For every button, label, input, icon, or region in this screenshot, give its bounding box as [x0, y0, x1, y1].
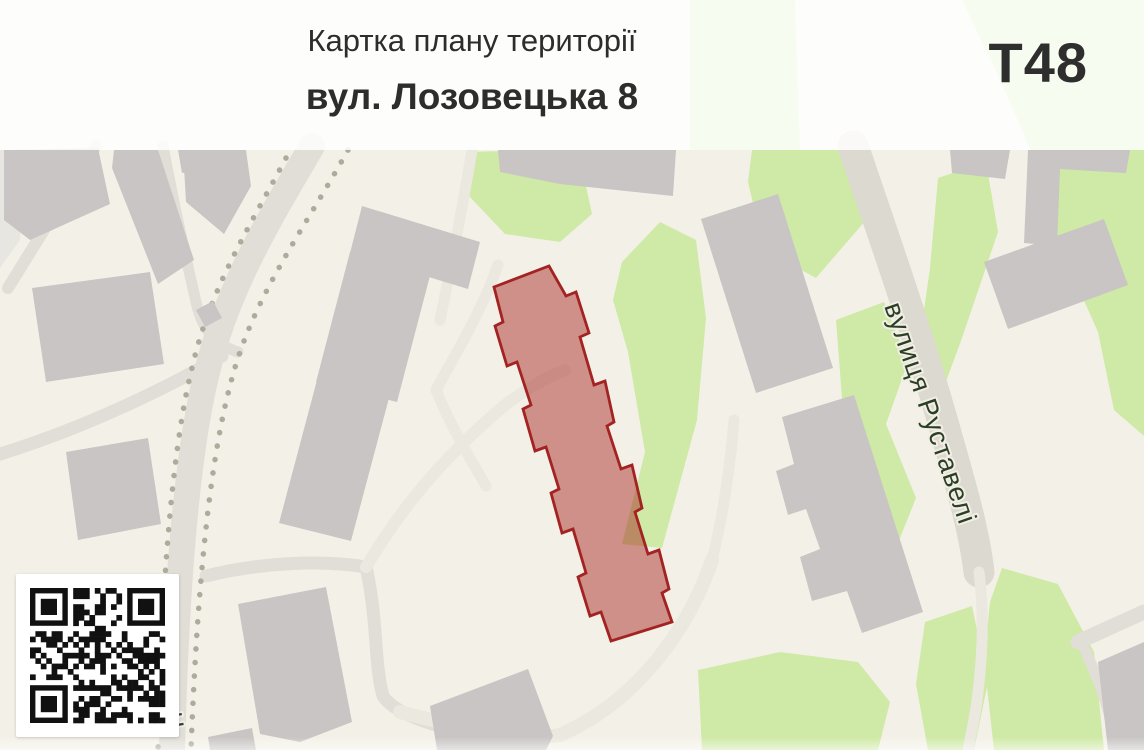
- qr-module: [116, 696, 122, 702]
- qr-module: [127, 680, 133, 686]
- qr-module: [149, 696, 155, 702]
- plan-card-header: Картка плану території вул. Лозовецька 8…: [0, 0, 1144, 150]
- qr-module: [95, 604, 101, 610]
- qr-module: [127, 658, 133, 664]
- qr-module: [138, 685, 144, 691]
- qr-module: [57, 664, 63, 670]
- qr-module: [41, 664, 47, 670]
- qr-module: [52, 631, 58, 637]
- qr-module: [95, 718, 101, 724]
- qr-module: [111, 712, 117, 718]
- qr-module: [160, 637, 166, 643]
- qr-module: [95, 701, 101, 707]
- qr-module: [95, 642, 101, 648]
- qr-module: [35, 647, 41, 653]
- qr-module: [35, 658, 41, 664]
- qr-module: [84, 620, 90, 626]
- qr-module: [79, 707, 85, 713]
- qr-module: [133, 664, 139, 670]
- qr-module: [122, 658, 128, 664]
- qr-module: [160, 669, 166, 675]
- qr-module: [154, 653, 160, 659]
- qr-module: [100, 631, 106, 637]
- qr-module: [79, 647, 85, 653]
- qr-module: [122, 707, 128, 713]
- qr-module: [154, 696, 160, 702]
- qr-module: [84, 653, 90, 659]
- qr-module: [84, 685, 90, 691]
- qr-module: [116, 642, 122, 648]
- qr-module: [143, 691, 149, 697]
- qr-module: [46, 637, 52, 643]
- qr-module: [160, 701, 166, 707]
- qr-module: [73, 674, 79, 680]
- qr-module: [62, 642, 68, 648]
- qr-module: [73, 653, 79, 659]
- qr-module: [95, 658, 101, 664]
- qr-module: [100, 599, 106, 605]
- qr-module: [52, 664, 58, 670]
- qr-module: [149, 712, 155, 718]
- qr-module: [84, 664, 90, 670]
- qr-module: [127, 685, 133, 691]
- qr-finder: [41, 599, 57, 615]
- qr-module: [46, 658, 52, 664]
- qr-module: [149, 718, 155, 724]
- qr-module: [89, 664, 95, 670]
- qr-module: [133, 685, 139, 691]
- qr-module: [154, 658, 160, 664]
- qr-module: [100, 669, 106, 675]
- qr-module: [73, 593, 79, 599]
- qr-module: [79, 593, 85, 599]
- qr-module: [111, 588, 117, 594]
- plan-code-badge: Т48: [989, 30, 1089, 95]
- qr-module: [149, 653, 155, 659]
- qr-module: [154, 631, 160, 637]
- qr-module: [95, 647, 101, 653]
- qr-module: [57, 647, 63, 653]
- qr-module: [111, 680, 117, 686]
- qr-module: [100, 637, 106, 643]
- qr-module: [95, 685, 101, 691]
- qr-module: [89, 685, 95, 691]
- qr-module: [106, 653, 112, 659]
- building-polygon: [66, 438, 161, 540]
- qr-module: [127, 642, 133, 648]
- qr-module: [68, 669, 74, 675]
- qr-module: [84, 637, 90, 643]
- qr-module: [73, 631, 79, 637]
- qr-module: [106, 642, 112, 648]
- qr-module: [89, 696, 95, 702]
- qr-module: [89, 631, 95, 637]
- qr-module: [95, 696, 101, 702]
- qr-module: [79, 637, 85, 643]
- qr-code-image: [16, 574, 179, 737]
- qr-module: [149, 669, 155, 675]
- qr-module: [73, 685, 79, 691]
- qr-module: [46, 642, 52, 648]
- qr-module: [154, 691, 160, 697]
- qr-module: [133, 680, 139, 686]
- qr-module: [160, 718, 166, 724]
- qr-module: [133, 653, 139, 659]
- qr-module: [116, 685, 122, 691]
- qr-module: [41, 653, 47, 659]
- qr-module: [100, 685, 106, 691]
- qr-module: [122, 647, 128, 653]
- qr-module: [52, 669, 58, 675]
- qr-module: [73, 664, 79, 670]
- qr-module: [73, 610, 79, 616]
- qr-finder: [41, 696, 57, 712]
- qr-module: [154, 647, 160, 653]
- qr-module: [100, 653, 106, 659]
- qr-module: [79, 696, 85, 702]
- qr-module: [138, 658, 144, 664]
- qr-module: [138, 696, 144, 702]
- qr-module: [122, 631, 128, 637]
- qr-module: [138, 718, 144, 724]
- green-area: [698, 652, 890, 750]
- title-block: Картка плану території вул. Лозовецька 8: [132, 22, 812, 119]
- qr-module: [138, 669, 144, 675]
- qr-module: [111, 647, 117, 653]
- qr-module: [154, 685, 160, 691]
- qr-module: [41, 637, 47, 643]
- qr-module: [89, 637, 95, 643]
- qr-module: [106, 685, 112, 691]
- qr-module: [100, 593, 106, 599]
- qr-module: [84, 588, 90, 594]
- qr-module: [30, 647, 36, 653]
- qr-module: [116, 593, 122, 599]
- qr-module: [122, 637, 128, 643]
- qr-module: [154, 701, 160, 707]
- territory-plan-card: вулиця Руставелі Ч Картка плану територі…: [0, 0, 1144, 750]
- qr-module: [79, 604, 85, 610]
- qr-module: [111, 718, 117, 724]
- qr-module: [73, 615, 79, 621]
- qr-module: [100, 664, 106, 670]
- qr-module: [46, 674, 52, 680]
- qr-module: [116, 615, 122, 621]
- qr-module: [116, 680, 122, 686]
- qr-module: [106, 701, 112, 707]
- qr-module: [149, 701, 155, 707]
- qr-module: [100, 707, 106, 713]
- qr-module: [127, 718, 133, 724]
- qr-module: [149, 631, 155, 637]
- qr-module: [95, 712, 101, 718]
- qr-module: [79, 653, 85, 659]
- qr-module: [30, 653, 36, 659]
- qr-module: [73, 642, 79, 648]
- qr-module: [160, 680, 166, 686]
- qr-module: [95, 631, 101, 637]
- qr-module: [84, 712, 90, 718]
- qr-module: [143, 642, 149, 648]
- qr-module: [84, 701, 90, 707]
- qr-module: [116, 653, 122, 659]
- qr-module: [149, 658, 155, 664]
- page-title: Картка плану території: [132, 22, 812, 61]
- qr-module: [89, 680, 95, 686]
- qr-module: [100, 718, 106, 724]
- qr-module: [100, 626, 106, 632]
- building-polygon: [32, 272, 164, 382]
- qr-module: [138, 674, 144, 680]
- qr-module: [52, 642, 58, 648]
- qr-module: [73, 620, 79, 626]
- qr-module: [127, 664, 133, 670]
- qr-module: [30, 637, 36, 643]
- qr-module: [143, 653, 149, 659]
- qr-module: [57, 674, 63, 680]
- qr-module: [143, 696, 149, 702]
- qr-module: [116, 599, 122, 605]
- qr-module: [73, 707, 79, 713]
- qr-module: [122, 685, 128, 691]
- qr-module: [100, 712, 106, 718]
- qr-module: [154, 712, 160, 718]
- qr-module: [100, 691, 106, 697]
- qr-module: [127, 691, 133, 697]
- qr-module: [68, 653, 74, 659]
- qr-module: [122, 674, 128, 680]
- qr-module: [30, 674, 36, 680]
- qr-module: [68, 637, 74, 643]
- qr-module: [111, 696, 117, 702]
- qr-module: [73, 701, 79, 707]
- qr-module: [84, 610, 90, 616]
- qr-module: [95, 626, 101, 632]
- qr-module: [106, 691, 112, 697]
- qr-module: [143, 674, 149, 680]
- qr-module: [79, 685, 85, 691]
- qr-module: [160, 674, 166, 680]
- qr-module: [95, 637, 101, 643]
- qr-module: [84, 707, 90, 713]
- qr-module: [111, 604, 117, 610]
- qr-module: [89, 701, 95, 707]
- qr-module: [143, 664, 149, 670]
- qr-module: [89, 620, 95, 626]
- qr-module: [160, 696, 166, 702]
- qr-module: [149, 685, 155, 691]
- qr-module: [79, 718, 85, 724]
- qr-module: [57, 631, 63, 637]
- qr-module: [57, 637, 63, 643]
- qr-module: [52, 637, 58, 643]
- qr-module: [62, 653, 68, 659]
- qr-module: [122, 712, 128, 718]
- qr-code: [16, 574, 179, 737]
- qr-module: [62, 664, 68, 670]
- qr-module: [116, 712, 122, 718]
- qr-module: [127, 647, 133, 653]
- qr-module: [154, 664, 160, 670]
- qr-module: [154, 718, 160, 724]
- qr-module: [106, 718, 112, 724]
- qr-module: [111, 620, 117, 626]
- qr-module: [73, 604, 79, 610]
- qr-module: [84, 593, 90, 599]
- qr-module: [100, 658, 106, 664]
- qr-module: [100, 604, 106, 610]
- qr-module: [127, 696, 133, 702]
- qr-module: [35, 631, 41, 637]
- qr-module: [106, 588, 112, 594]
- qr-module: [138, 653, 144, 659]
- qr-module: [79, 588, 85, 594]
- qr-module: [143, 658, 149, 664]
- qr-module: [73, 588, 79, 594]
- qr-module: [160, 653, 166, 659]
- qr-module: [143, 637, 149, 643]
- qr-module: [138, 647, 144, 653]
- qr-module: [79, 658, 85, 664]
- qr-module: [79, 615, 85, 621]
- qr-module: [41, 631, 47, 637]
- qr-module: [149, 680, 155, 686]
- qr-module: [52, 674, 58, 680]
- qr-module: [111, 664, 117, 670]
- qr-module: [89, 615, 95, 621]
- qr-module: [62, 658, 68, 664]
- qr-module: [111, 674, 117, 680]
- qr-module: [79, 712, 85, 718]
- qr-module: [106, 631, 112, 637]
- qr-module: [95, 588, 101, 594]
- qr-module: [133, 647, 139, 653]
- qr-module: [79, 610, 85, 616]
- qr-module: [160, 691, 166, 697]
- qr-module: [95, 610, 101, 616]
- qr-module: [79, 680, 85, 686]
- qr-module: [95, 653, 101, 659]
- qr-module: [100, 610, 106, 616]
- qr-module: [127, 712, 133, 718]
- address-subtitle: вул. Лозовецька 8: [132, 75, 812, 119]
- qr-module: [89, 658, 95, 664]
- qr-module: [73, 718, 79, 724]
- qr-finder: [138, 599, 154, 615]
- qr-module: [84, 642, 90, 648]
